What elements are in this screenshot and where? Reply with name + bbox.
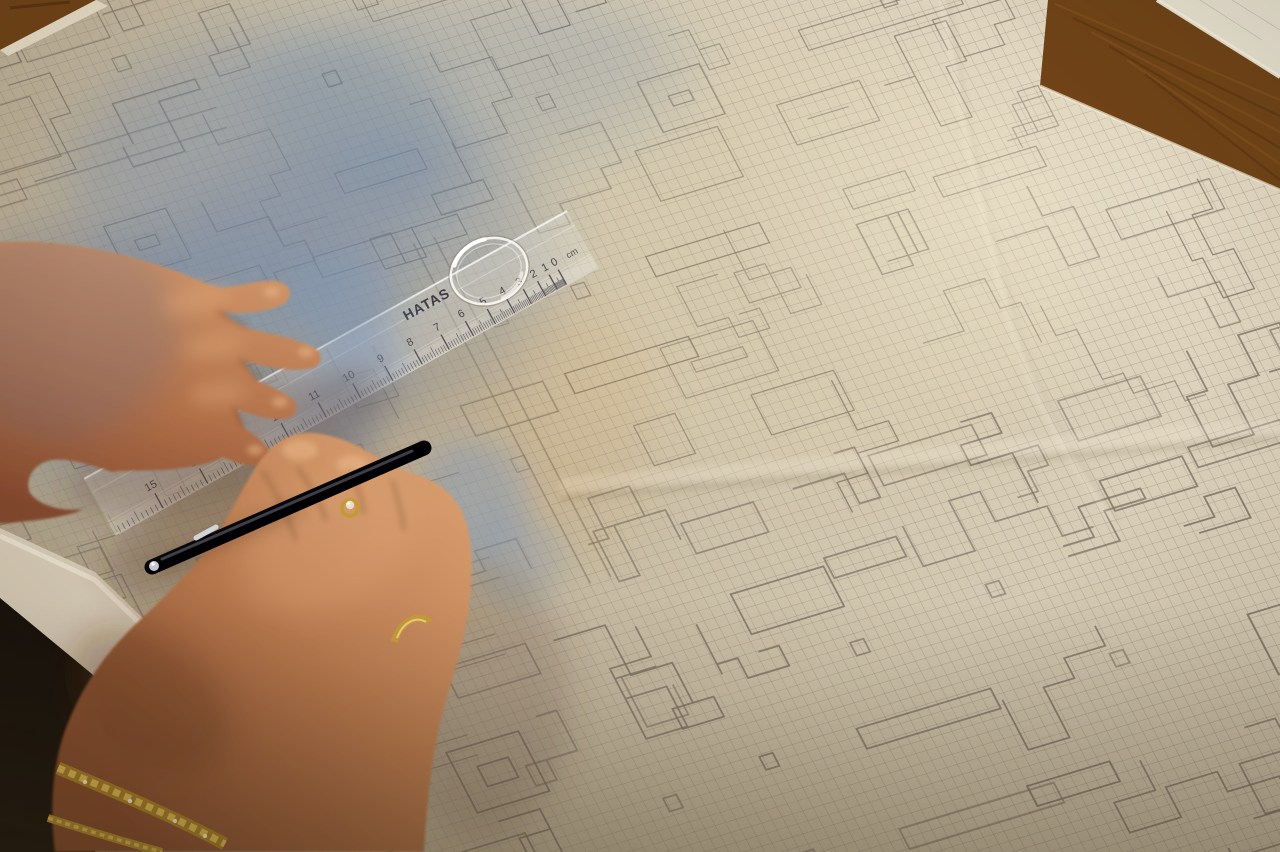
- photo-stage: 0123456789101112131415cmHATAS: [0, 0, 1280, 852]
- vignette: [0, 0, 1280, 852]
- photo-of-hands-drawing-on-graph-paper: 0123456789101112131415cmHATAS: [0, 0, 1280, 852]
